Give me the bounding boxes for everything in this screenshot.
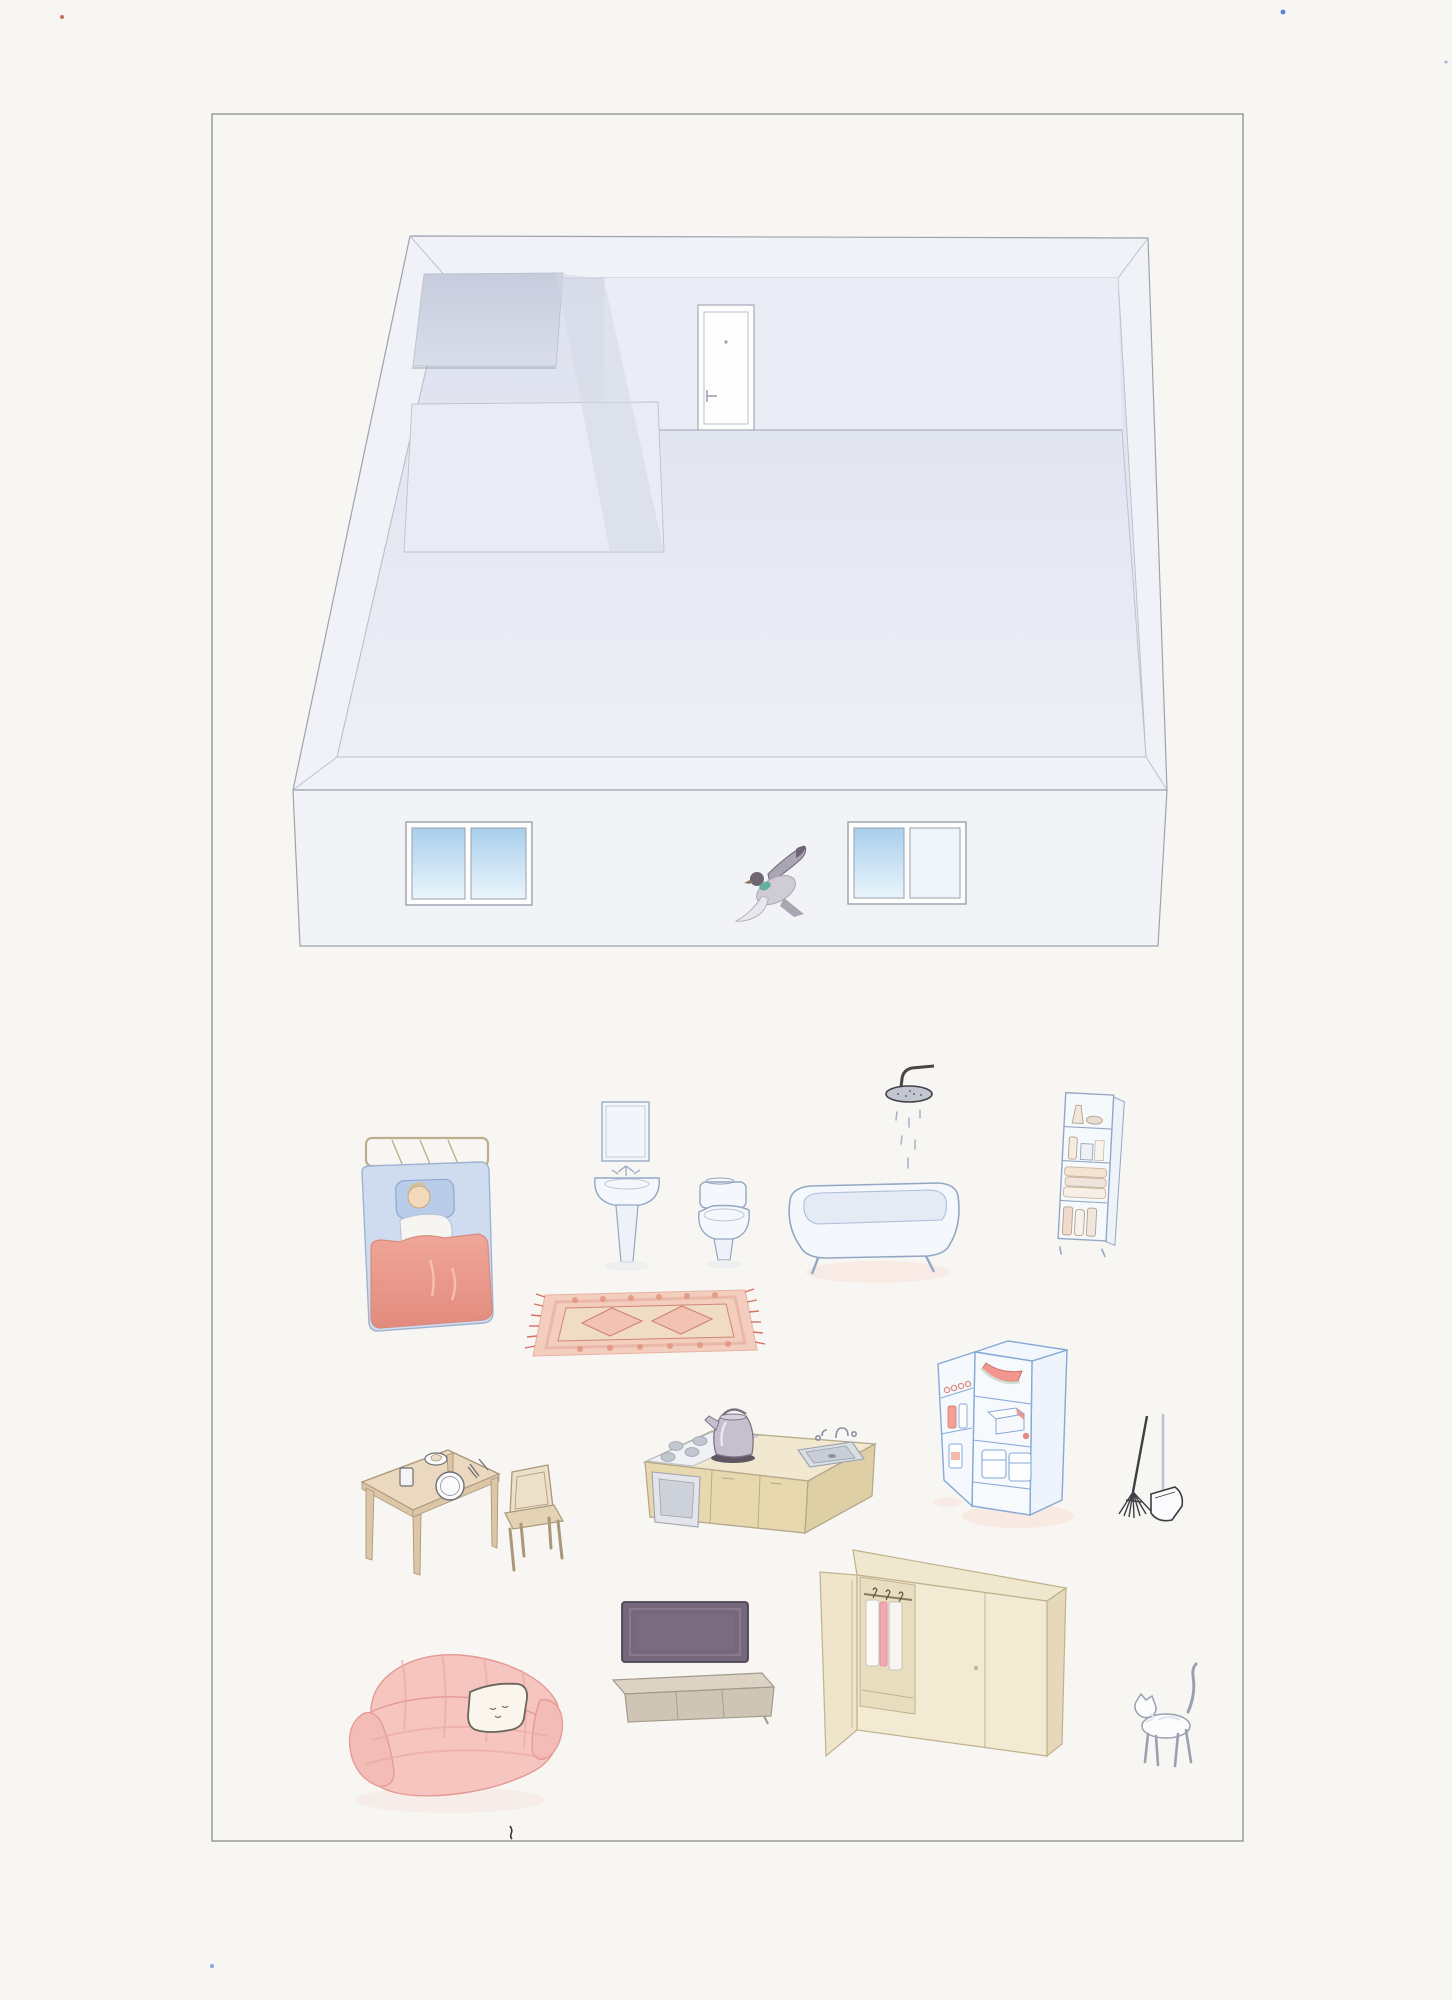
dustpan <box>1151 1414 1182 1521</box>
bathroom-shelf <box>1057 1093 1124 1258</box>
sink-basin <box>595 1178 659 1207</box>
ink-mark <box>510 1826 512 1839</box>
toilet-tank <box>700 1182 746 1208</box>
sink-pedestal <box>616 1205 638 1262</box>
glass <box>400 1468 413 1486</box>
wardrobe <box>820 1550 1066 1756</box>
sofa-arm-right <box>532 1700 563 1760</box>
fridge-door <box>938 1352 975 1506</box>
back-wall <box>604 278 1122 430</box>
sink-faucet <box>612 1166 640 1176</box>
bed <box>362 1138 493 1331</box>
fridge <box>934 1341 1074 1528</box>
hanging-garment-pink <box>880 1602 887 1666</box>
mop-head <box>1119 1492 1151 1518</box>
tub-rim <box>804 1190 947 1224</box>
tv-stand <box>613 1673 774 1724</box>
walking-cat <box>1135 1664 1196 1766</box>
mop <box>1119 1416 1151 1518</box>
kitchen-faucet <box>816 1428 856 1440</box>
shelf-towels <box>1063 1167 1107 1199</box>
water-drops <box>896 1110 920 1168</box>
hanging-shirt-1 <box>866 1600 879 1666</box>
facade-window-right <box>848 822 966 904</box>
hanging-shirt-2 <box>889 1602 902 1670</box>
watercolor-illustration <box>0 0 1452 2000</box>
closet-room <box>412 273 563 368</box>
sofa <box>349 1654 562 1813</box>
bathtub <box>789 1183 959 1283</box>
facade-window-left <box>406 822 532 905</box>
door-peephole <box>724 340 727 343</box>
tv <box>622 1602 748 1662</box>
kettle-spout <box>705 1416 719 1430</box>
room-shell <box>293 236 1167 946</box>
cat-tail <box>1188 1664 1196 1712</box>
dining-table <box>362 1450 499 1575</box>
facade <box>293 790 1167 946</box>
sink <box>595 1102 659 1271</box>
wardrobe-door-open <box>820 1572 857 1756</box>
door-bottle-red <box>948 1406 956 1428</box>
shower-head <box>886 1066 934 1168</box>
sleeping-cat <box>468 1684 527 1732</box>
wardrobe-opening <box>860 1577 915 1714</box>
wardrobe-side <box>1047 1588 1066 1756</box>
cat-head <box>1135 1694 1156 1718</box>
shelf-items-bottom <box>1062 1207 1096 1237</box>
person-head <box>408 1186 430 1208</box>
toilet <box>699 1178 749 1268</box>
chair <box>505 1465 563 1570</box>
kitchen-counter <box>645 1409 875 1533</box>
rug <box>525 1289 765 1356</box>
toilet-bowl <box>699 1206 749 1241</box>
toilet-base <box>714 1239 733 1260</box>
entry-door <box>698 305 754 430</box>
fridge-side <box>1030 1350 1067 1515</box>
bed-blanket <box>371 1234 492 1328</box>
mirror <box>602 1102 649 1161</box>
